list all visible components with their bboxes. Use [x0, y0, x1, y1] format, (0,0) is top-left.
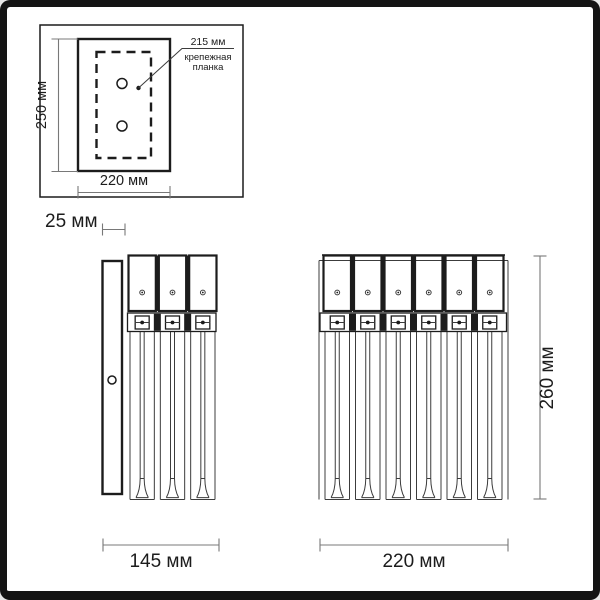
rod-flare: [423, 479, 435, 498]
side-width-dimension-145: 145 мм: [103, 539, 219, 573]
rod-flare: [484, 479, 496, 498]
band-dot: [488, 321, 492, 325]
front-width-dimension-220: 220 мм: [320, 539, 508, 573]
panel-screw-dot: [458, 292, 460, 294]
front-view: 260 мм 220 мм: [319, 255, 558, 572]
mounting-hole-bottom: [117, 121, 127, 131]
backplate-outline: [78, 39, 170, 171]
band-dot: [201, 321, 205, 325]
band-dot: [396, 321, 400, 325]
band-divider-block: [154, 314, 161, 331]
front-width-label: 220 мм: [382, 551, 445, 572]
rod-flare: [392, 479, 404, 498]
panel-divider: [186, 256, 190, 312]
band-dot: [457, 321, 461, 325]
rod-flare: [331, 479, 343, 498]
technical-drawing: 215 мм крепежная планка 250 мм 220 мм 25…: [0, 0, 600, 600]
panel-screw-dot: [336, 292, 338, 294]
width-dimension-220: 220 мм: [78, 173, 170, 199]
band-divider-block: [410, 314, 417, 331]
band-divider-block: [441, 314, 448, 331]
band-dot: [427, 321, 431, 325]
panel-screw-dot: [397, 292, 399, 294]
front-height-dimension-260: 260 мм: [534, 256, 559, 499]
panel-divider: [155, 256, 159, 312]
panel-divider: [381, 256, 385, 312]
mounting-plate-view: 215 мм крепежная планка 250 мм 220 мм: [34, 25, 243, 199]
lamp-panel: [446, 256, 474, 312]
band-dot: [171, 321, 175, 325]
side-width-label: 145 мм: [129, 551, 192, 572]
band-divider-block: [184, 314, 191, 331]
band-dot: [335, 321, 339, 325]
lamp-panel: [189, 256, 216, 312]
lamp-panel: [324, 256, 352, 312]
panel-screw-dot: [367, 292, 369, 294]
hole-spacing-label: 215 мм: [191, 36, 226, 48]
panel-divider: [412, 256, 416, 312]
band-divider-block: [349, 314, 356, 331]
panel-divider: [351, 256, 355, 312]
front-height-label: 260 мм: [537, 346, 558, 409]
mount-plate-label-line2: планка: [193, 62, 225, 73]
depth-label: 25 мм: [45, 211, 98, 232]
wall-plate-screw-hole: [108, 376, 116, 384]
panel-screw-dot: [172, 292, 174, 294]
side-view-sections: [129, 256, 217, 500]
rod-flare: [136, 479, 148, 498]
rod-flare: [197, 479, 209, 498]
lamp-panel: [354, 256, 382, 312]
rod-flare: [453, 479, 465, 498]
panel-screw-dot: [428, 292, 430, 294]
lamp-panel: [385, 256, 413, 312]
wall-plate-side: [103, 261, 123, 494]
side-view: 145 мм: [103, 256, 220, 573]
lamp-panel: [415, 256, 443, 312]
panel-divider: [442, 256, 446, 312]
band-divider-block: [471, 314, 478, 331]
rod-flare: [362, 479, 374, 498]
panel-screw-dot: [141, 292, 143, 294]
lamp-panel: [129, 256, 156, 312]
panel-screw-dot: [489, 292, 491, 294]
image-border-frame: 215 мм крепежная планка 250 мм 220 мм 25…: [0, 0, 600, 600]
band-dot: [140, 321, 144, 325]
band-divider-block: [380, 314, 387, 331]
panel-divider: [473, 256, 477, 312]
panel-screw-dot: [202, 292, 204, 294]
depth-dimension-25: 25 мм: [45, 211, 125, 236]
front-view-sections: [324, 256, 504, 500]
lamp-panel: [476, 256, 504, 312]
lamp-panel: [159, 256, 186, 312]
mounting-bracket-dashed-outline: [97, 52, 152, 158]
band-dot: [366, 321, 370, 325]
rod-flare: [166, 479, 178, 498]
plate-height-label: 250 мм: [34, 81, 50, 129]
plate-width-label: 220 мм: [100, 173, 148, 189]
mounting-hole-top: [117, 79, 127, 89]
